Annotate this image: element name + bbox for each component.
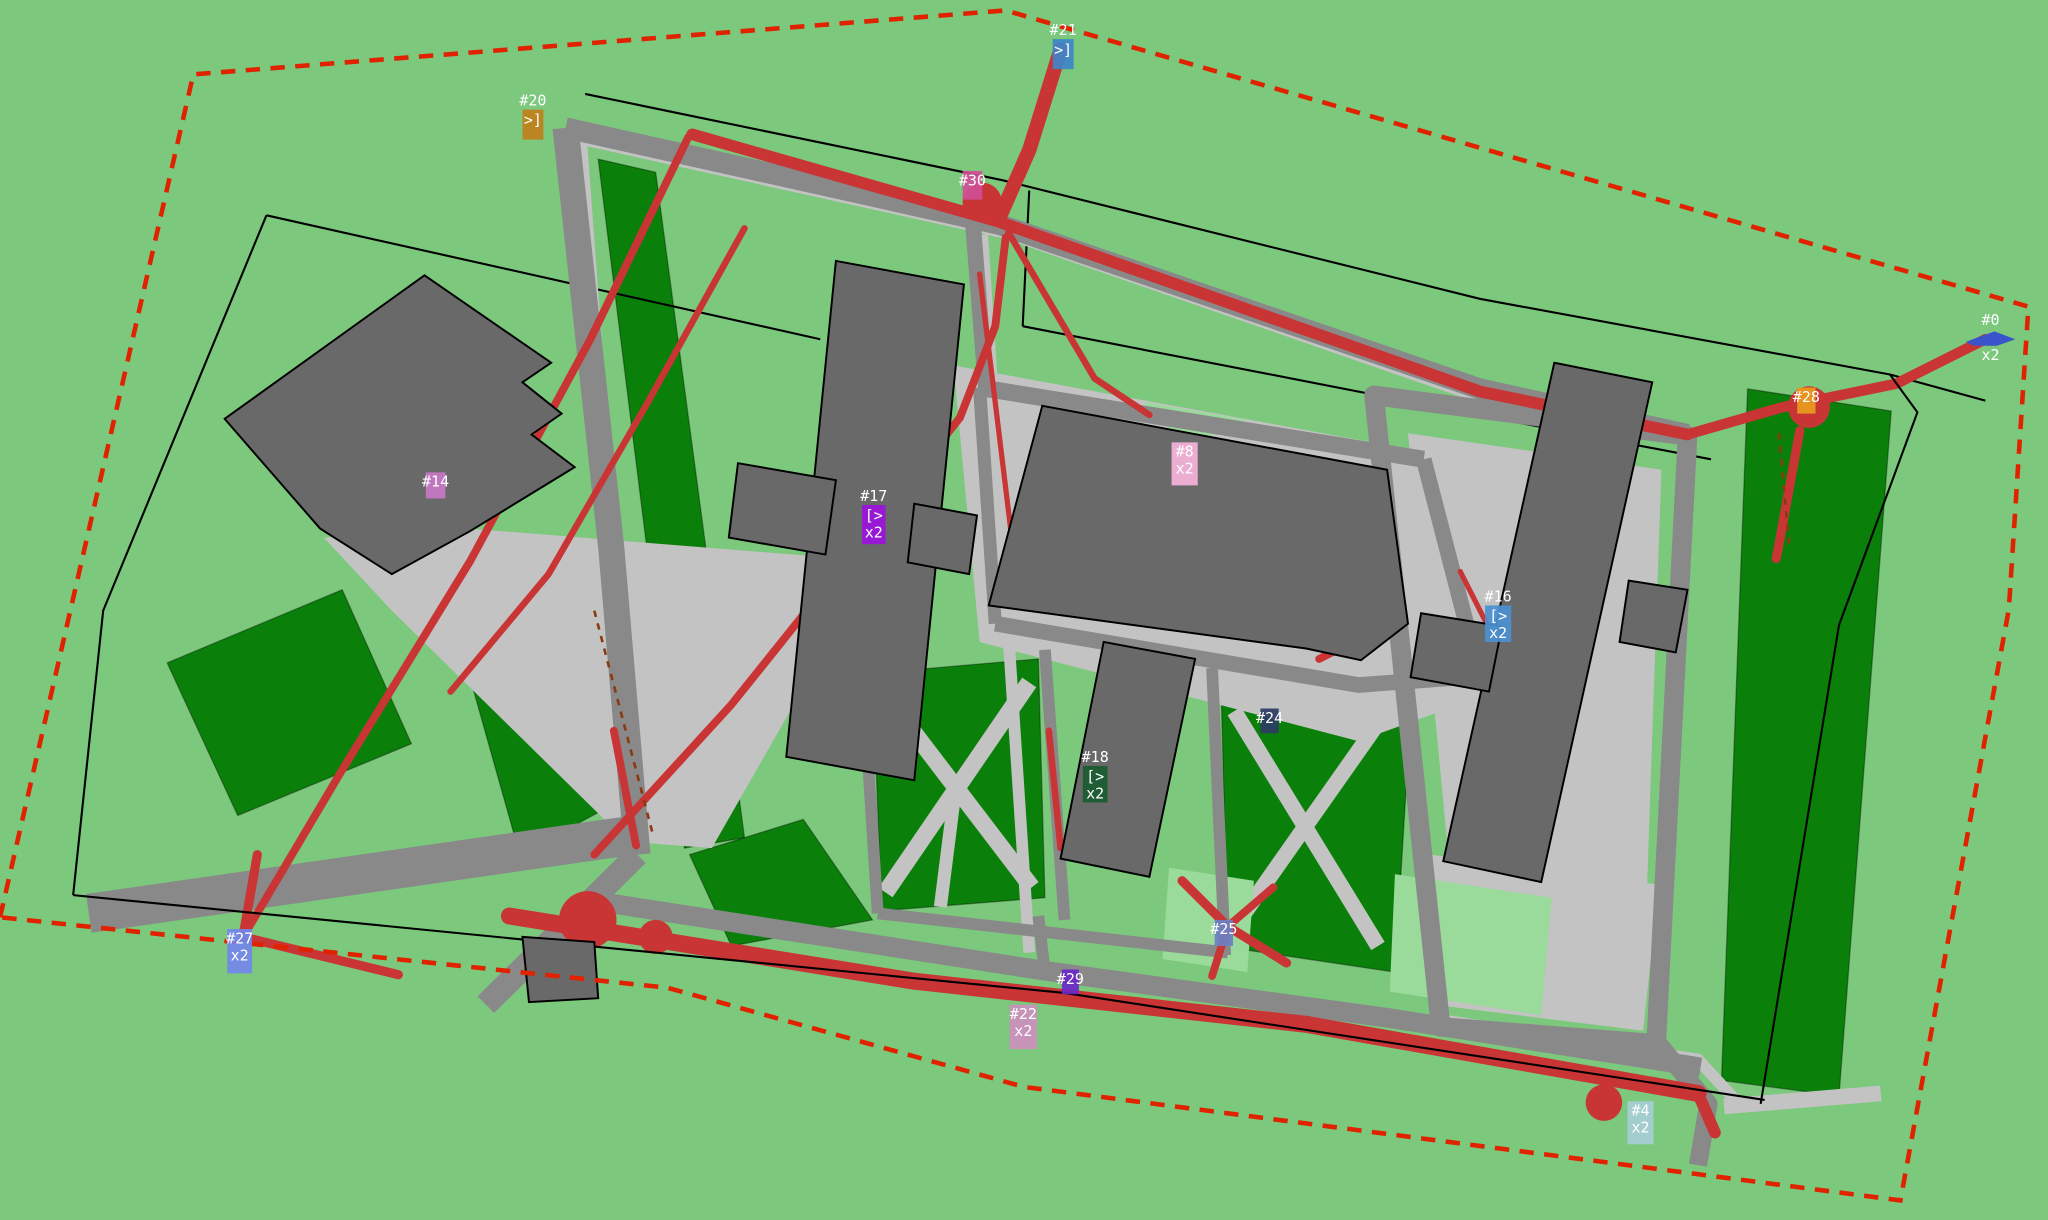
marker-label: #22 [1010,1005,1037,1023]
marker-label: #18 [1082,748,1109,766]
marker-label: x2 [231,946,249,964]
marker-label: #28 [1793,388,1820,406]
building-west-wing-r [908,504,977,574]
marker-label: #14 [422,473,449,491]
marker-label: >] [524,111,542,129]
marker-label: #29 [1057,970,1084,988]
marker-21[interactable]: #21>] [1050,21,1077,69]
marker-label: x2 [1014,1022,1032,1040]
marker-label: #17 [860,487,887,505]
road-court-link [1038,916,1045,973]
trajectory-junction-blob-2 [639,920,673,954]
marker-label: x2 [865,524,883,542]
marker-label: #20 [519,92,546,110]
marker-17[interactable]: #17[>x2 [860,487,887,544]
marker-label: x2 [1086,785,1104,803]
marker-14[interactable]: #14 [422,472,449,498]
marker-8[interactable]: #8x2 [1172,442,1198,485]
trajectory-blob-4 [1586,1084,1623,1121]
marker-20[interactable]: #20>] [519,92,546,140]
marker-27[interactable]: #27x2 [226,929,253,973]
marker-4[interactable]: #4x2 [1627,1101,1653,1144]
marker-16[interactable]: #16[>x2 [1485,588,1512,643]
building-small-south [522,937,598,1002]
marker-label: #21 [1050,21,1077,39]
site-map[interactable]: #20>]#21>]#30#14#17[>x2#8x2#16[>x2#18[>x… [0,0,2048,1220]
building-east-wing-r [1620,581,1688,653]
marker-30[interactable]: #30 [959,171,986,200]
marker-22[interactable]: #22x2 [1010,1005,1037,1049]
marker-label: #4 [1631,1102,1649,1120]
marker-label: x2 [1176,460,1194,478]
marker-label: >] [1054,41,1072,59]
marker-label: #16 [1485,588,1512,606]
marker-18[interactable]: #18[>x2 [1082,748,1109,803]
marker-label: #0 [1981,311,1999,329]
marker-label: [> [1489,607,1507,625]
marker-label: #24 [1256,709,1283,727]
marker-label: #25 [1210,920,1237,938]
marker-label: x2 [1981,346,1999,364]
building-west-wing-l [729,463,836,554]
site-map-stage[interactable]: #20>]#21>]#30#14#17[>x2#8x2#16[>x2#18[>x… [0,0,2048,1220]
marker-label: x2 [1489,624,1507,642]
marker-label: x2 [1631,1119,1649,1137]
marker-label: #27 [226,929,253,947]
marker-label: [> [1086,768,1104,786]
marker-label: #8 [1176,443,1194,461]
marker-label: #30 [959,171,986,189]
marker-label: [> [865,507,883,525]
light-lawn-inner-court [1390,874,1552,1015]
